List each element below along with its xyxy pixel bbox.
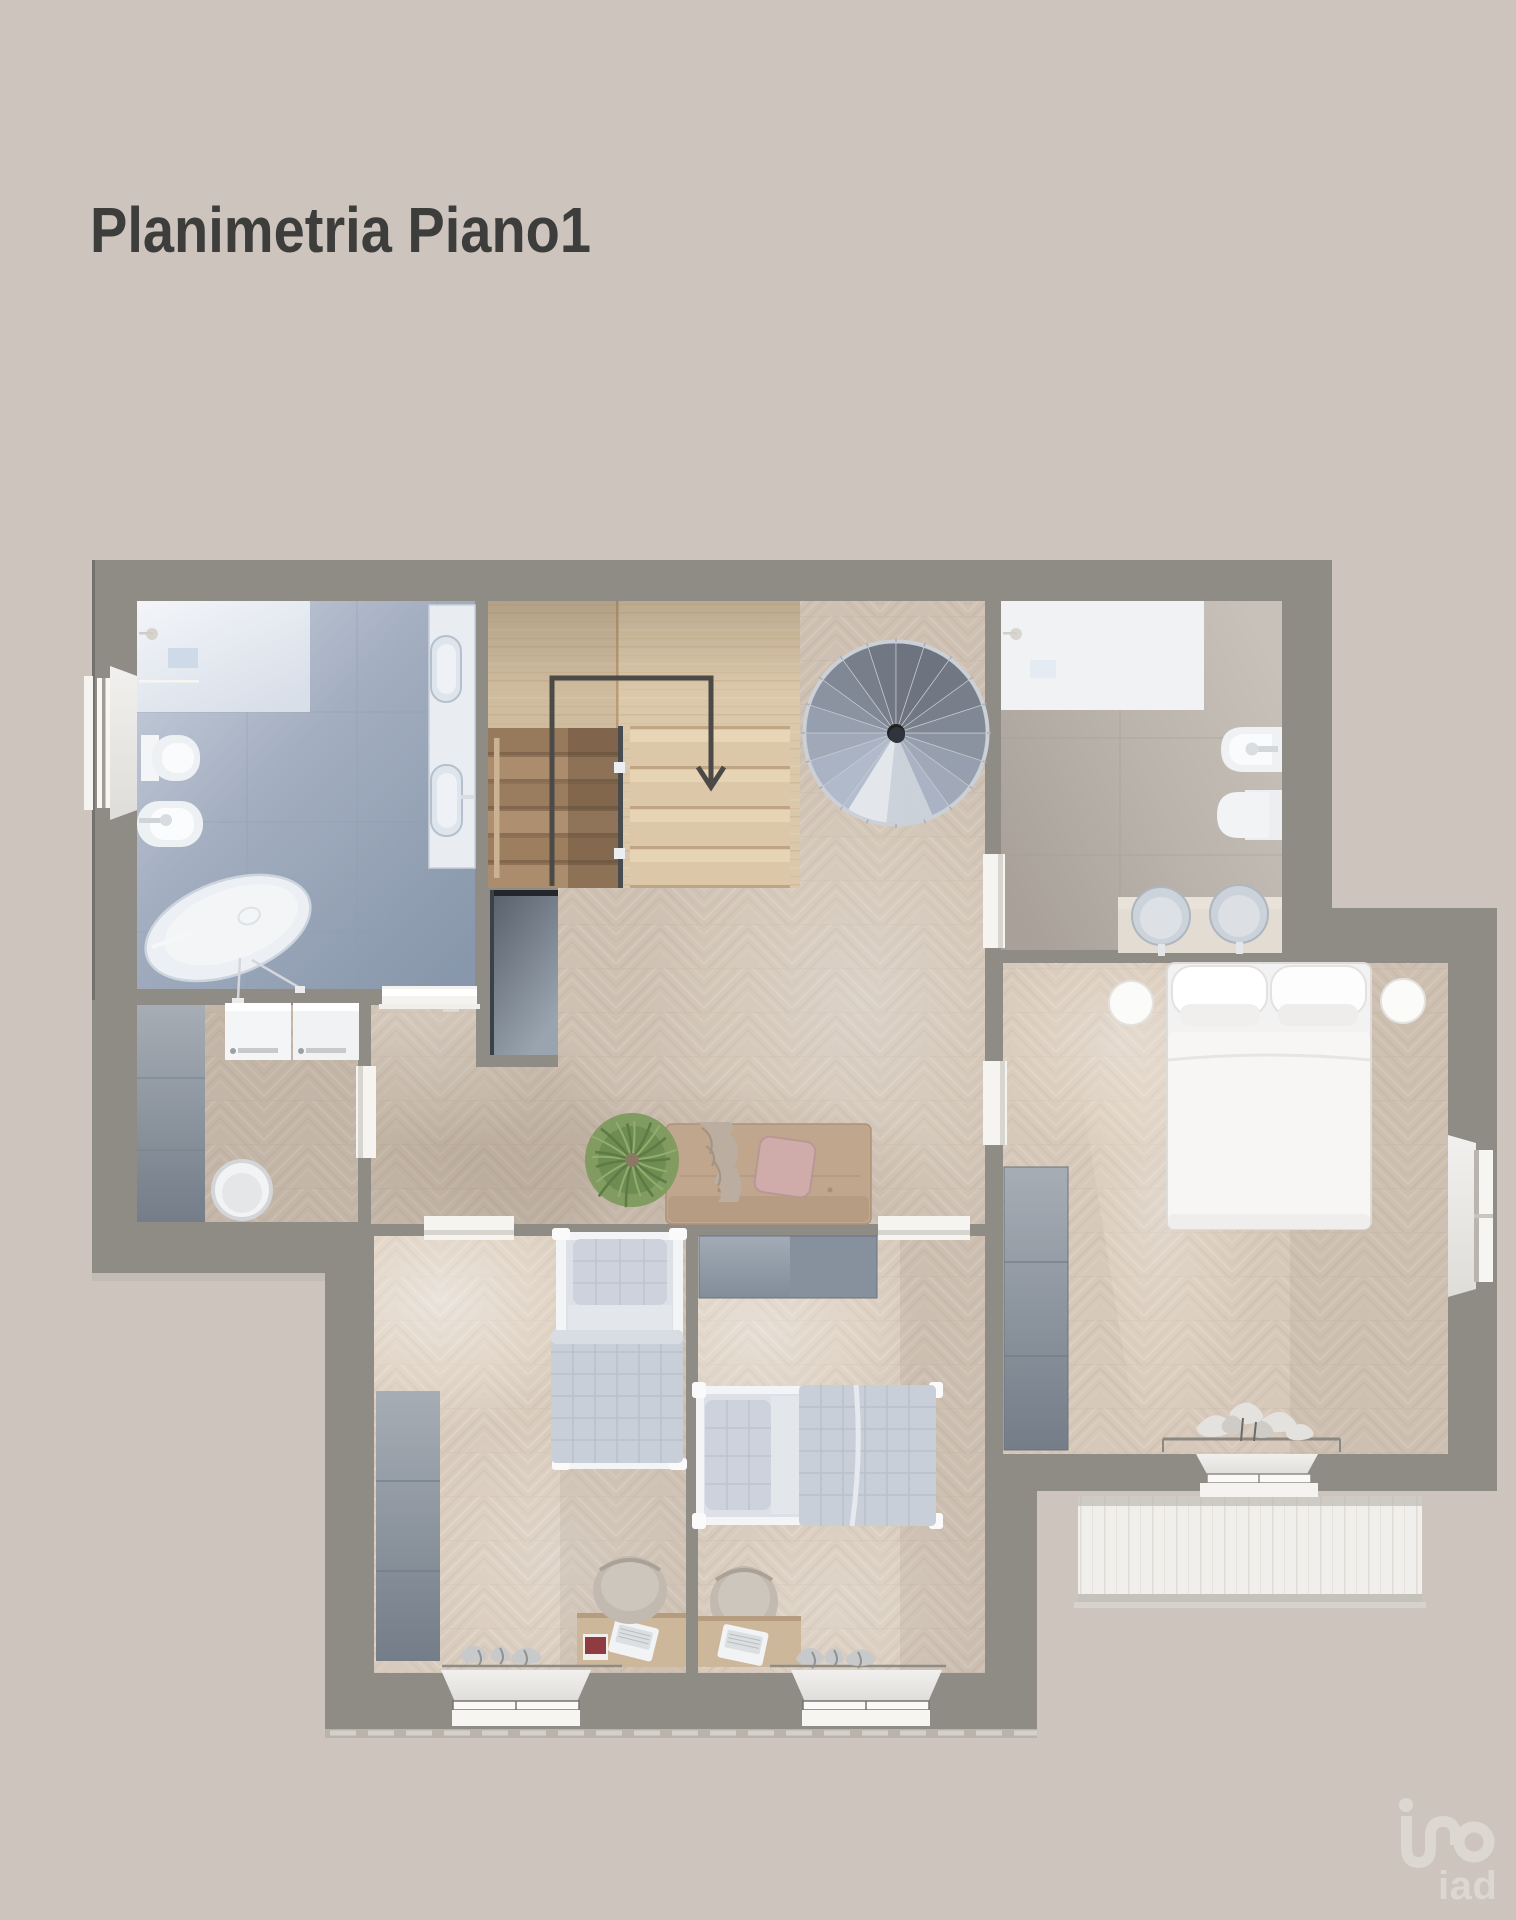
svg-text:Planimetria Piano1: Planimetria Piano1: [90, 195, 591, 266]
svg-text:iad: iad: [1438, 1864, 1497, 1908]
